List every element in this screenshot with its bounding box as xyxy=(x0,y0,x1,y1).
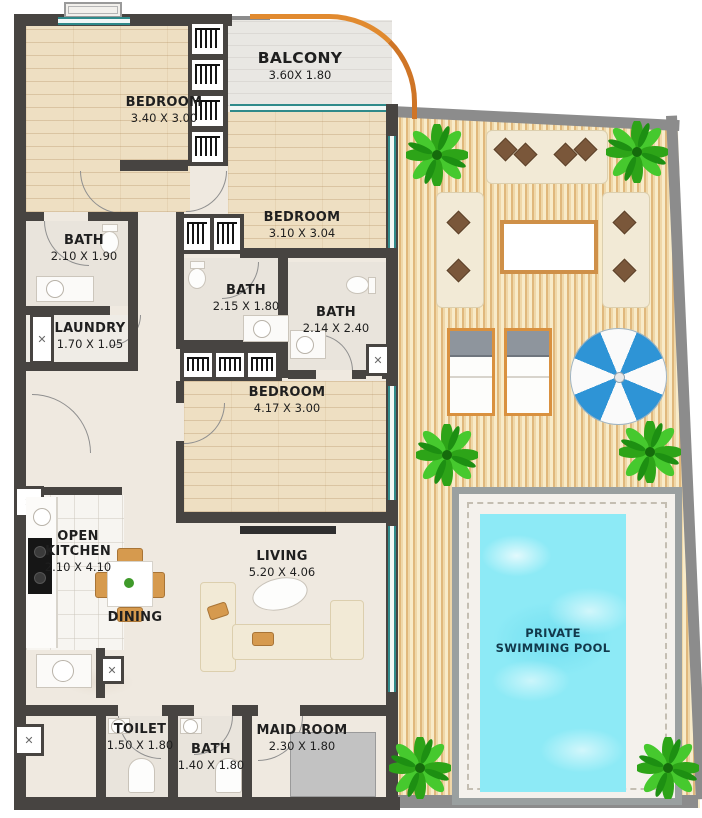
wall-outer-left xyxy=(14,14,26,810)
wall-bath1-top xyxy=(26,212,44,221)
room-name: BEDROOM xyxy=(246,211,358,226)
palm-tree-icon xyxy=(416,424,478,486)
tv-console-icon xyxy=(240,526,336,534)
window-balcony-bedroom2 xyxy=(230,104,386,112)
wall-bottom-rooms-top xyxy=(300,705,392,716)
sun-lounger-icon xyxy=(447,328,495,416)
shaft-box: ✕ xyxy=(366,344,390,376)
kitchen-sink-icon xyxy=(33,508,51,526)
sun-lounger-icon xyxy=(504,328,552,416)
living-label: LIVING 5.20 X 4.06 xyxy=(228,550,336,579)
shaft-box: ✕ xyxy=(100,656,124,684)
room-dims: 3.40 X 3.00 xyxy=(112,112,216,125)
bedroom3-label: BEDROOM 4.17 X 3.00 xyxy=(234,386,340,415)
closet-cell xyxy=(192,132,223,162)
wall-bath3-bottom xyxy=(288,370,316,379)
hanging-clothes-icon xyxy=(195,136,220,156)
palm-tree-icon xyxy=(606,121,668,183)
hanging-clothes-icon xyxy=(217,222,237,244)
closet-cell xyxy=(214,218,240,250)
shaft-x-icon: ✕ xyxy=(373,354,382,367)
closet-cell xyxy=(248,353,276,377)
room-name: TOILET xyxy=(102,723,178,738)
room-dims: 2.15 X 1.80 xyxy=(196,300,296,313)
terrace-sofa-left-icon xyxy=(436,192,484,308)
room-name: LAUNDRY xyxy=(36,322,144,337)
living-sofa-icon xyxy=(200,582,236,672)
hanging-clothes-icon xyxy=(195,28,220,48)
sink-icon xyxy=(46,280,64,298)
bath2-label: BATH 2.15 X 1.80 xyxy=(196,284,296,313)
wall-bedroom3-living xyxy=(176,512,392,523)
washer-drum-icon xyxy=(52,660,74,682)
wall-bottom-rooms-top xyxy=(26,705,118,716)
room-dims: 1.50 X 1.80 xyxy=(102,739,178,752)
wall-bottom-rooms-top xyxy=(162,705,194,716)
shaft-x-icon: ✕ xyxy=(24,734,33,747)
wall-bedroom1-bottom xyxy=(120,160,188,171)
room-name: BEDROOM xyxy=(234,386,340,401)
sink-icon xyxy=(296,336,314,354)
room-name: BATH xyxy=(196,284,296,299)
closet-cell xyxy=(216,353,244,377)
room-dims: 2.30 X 1.80 xyxy=(250,740,354,753)
table-plant-icon xyxy=(124,578,134,588)
bath4-label: BATH 1.40 X 1.80 xyxy=(172,743,250,772)
room-name: OPEN KITCHEN xyxy=(34,530,122,560)
room-name: BATH xyxy=(172,743,250,758)
sofa-cushion-icon xyxy=(252,632,274,646)
palm-tree-icon xyxy=(637,737,699,799)
umbrella-hub xyxy=(614,372,625,383)
toilet-icon xyxy=(128,758,155,793)
bedroom1-label: BEDROOM 3.40 X 3.00 xyxy=(112,96,216,125)
window-living-terrace xyxy=(388,526,396,692)
room-dims: 3.60X 1.80 xyxy=(240,69,360,82)
terrace-coffee-table-icon xyxy=(500,220,598,274)
window-bedroom2-terrace xyxy=(388,136,396,248)
bath1-label: BATH 2.10 X 1.90 xyxy=(32,234,136,263)
wall-bath3-bottom xyxy=(352,370,366,379)
hanging-clothes-icon xyxy=(195,64,220,84)
living-sofa-icon xyxy=(232,624,338,660)
palm-tree-icon xyxy=(619,421,681,483)
umbrella-icon xyxy=(570,328,667,425)
wall-bottom-rooms-top xyxy=(232,705,258,716)
toilet-icon xyxy=(346,276,369,294)
maid-room-label: MAID ROOM 2.30 X 1.80 xyxy=(250,724,354,753)
terrace-sofa-right-icon xyxy=(602,192,650,308)
planter-box xyxy=(64,2,122,18)
closet-cell xyxy=(184,218,210,250)
pool-label-text: PRIVATE SWIMMING POOL xyxy=(495,626,611,656)
closet-cell xyxy=(184,353,212,377)
open-kitchen-label: OPEN KITCHEN 2.10 X 4.10 xyxy=(34,530,122,574)
lounger-seam xyxy=(507,376,549,378)
palm-tree-icon xyxy=(389,737,451,799)
hanging-clothes-icon xyxy=(219,357,241,371)
room-dims: 1.70 X 1.05 xyxy=(36,338,144,351)
wall-outer-bottom xyxy=(14,797,400,810)
room-name: BATH xyxy=(32,234,136,249)
floor-plan: PRIVATE SWIMMING POOL xyxy=(0,0,702,818)
wall-bedroom3-left xyxy=(176,381,184,403)
hanging-clothes-icon xyxy=(187,222,207,244)
sink-icon xyxy=(253,320,271,338)
dining-label: DINING xyxy=(95,611,175,626)
lounger-pillow xyxy=(507,331,549,357)
lounger-seam xyxy=(450,376,492,378)
room-dims: 2.10 X 1.90 xyxy=(32,250,136,263)
shaft-box: ✕ xyxy=(14,724,44,756)
balcony-label: BALCONY 3.60X 1.80 xyxy=(240,50,360,82)
room-name: BATH xyxy=(286,306,386,321)
room-name: BEDROOM xyxy=(112,96,216,111)
bath3-label: BATH 2.14 X 2.40 xyxy=(286,306,386,335)
room-name: LIVING xyxy=(228,550,336,565)
lounger-pillow xyxy=(450,331,492,357)
vanity-icon xyxy=(36,276,94,302)
planter-inner xyxy=(68,6,118,14)
hanging-clothes-icon xyxy=(251,357,273,371)
closet-cell xyxy=(192,24,223,54)
laundry-label: LAUNDRY 1.70 X 1.05 xyxy=(36,322,144,351)
room-dims: 5.20 X 4.06 xyxy=(228,566,336,579)
room-name: MAID ROOM xyxy=(250,724,354,739)
sink-icon xyxy=(183,719,198,734)
room-dims: 4.17 X 3.00 xyxy=(234,402,340,415)
living-armchair-icon xyxy=(330,600,364,660)
room-dims: 3.10 X 3.04 xyxy=(246,227,358,240)
wall-bedroom3-left xyxy=(176,441,184,516)
bedroom2-label: BEDROOM 3.10 X 3.04 xyxy=(246,211,358,240)
toilet-tank-icon xyxy=(368,277,376,294)
room-dims: 1.40 X 1.80 xyxy=(172,759,250,772)
window-bedroom1-top xyxy=(58,17,130,25)
room-dims: 2.14 X 2.40 xyxy=(286,322,386,335)
pool-label: PRIVATE SWIMMING POOL xyxy=(495,626,611,656)
room-name: BALCONY xyxy=(240,50,360,68)
shaft-x-icon: ✕ xyxy=(107,664,116,677)
closet-cell xyxy=(192,60,223,90)
wall-bedroom2-bottom xyxy=(240,248,392,258)
room-dims: 2.10 X 4.10 xyxy=(34,561,122,574)
hanging-clothes-icon xyxy=(187,357,209,371)
palm-tree-icon xyxy=(406,124,468,186)
toilet-label: TOILET 1.50 X 1.80 xyxy=(102,723,178,752)
window-bedroom3-terrace xyxy=(388,386,396,500)
room-name: DINING xyxy=(95,611,175,626)
